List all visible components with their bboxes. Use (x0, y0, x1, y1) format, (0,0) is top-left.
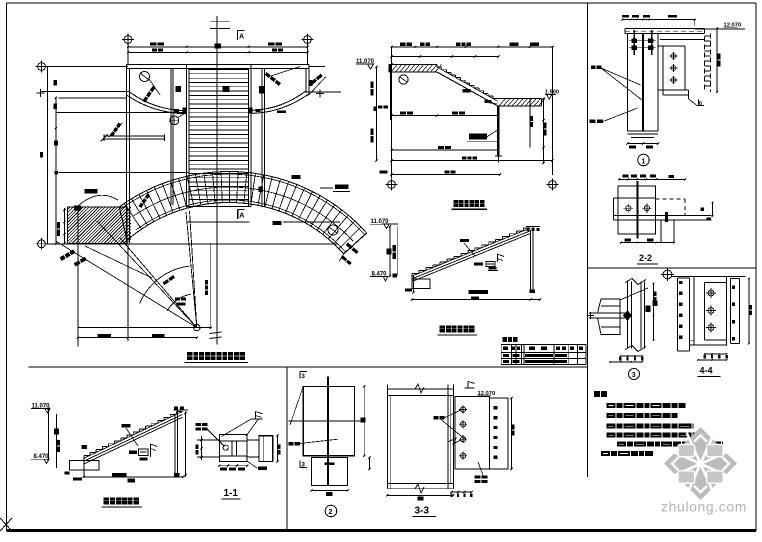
svg-text:A: A (239, 34, 244, 41)
svg-text:2-2: 2-2 (639, 253, 652, 263)
svg-text:1: 1 (642, 158, 646, 165)
svg-text:zhulong.com: zhulong.com (661, 499, 747, 515)
svg-text:3: 3 (301, 461, 305, 468)
svg-text:2: 2 (329, 509, 333, 516)
svg-text:3: 3 (632, 372, 636, 379)
svg-text:4-4: 4-4 (700, 366, 713, 376)
svg-text:6: 6 (699, 101, 702, 107)
svg-text:3-3: 3-3 (415, 506, 430, 517)
svg-text:3: 3 (301, 373, 305, 380)
svg-text:1-1: 1-1 (224, 488, 239, 499)
svg-text:A: A (239, 213, 244, 220)
